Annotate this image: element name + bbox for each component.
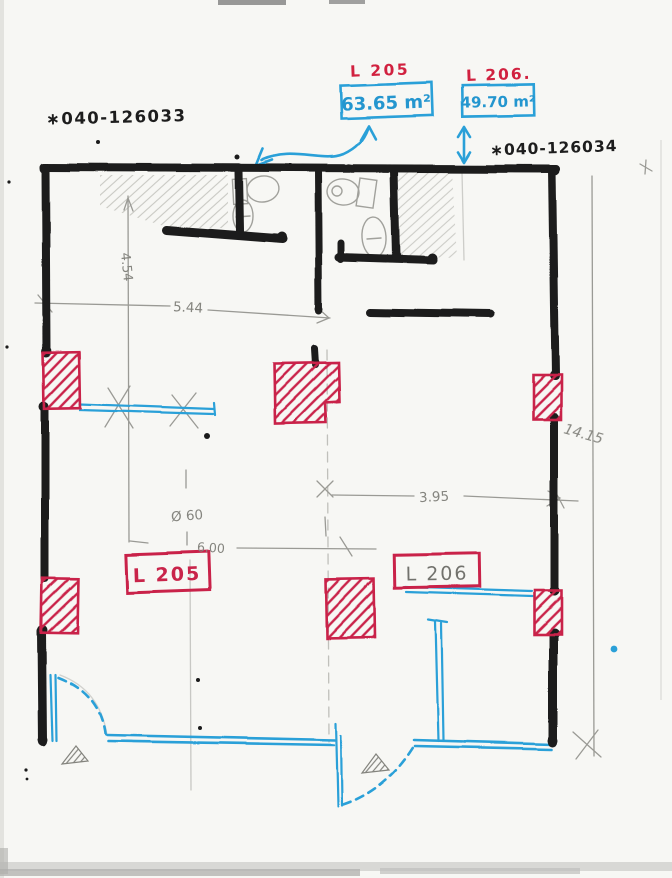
ink-dot — [204, 433, 210, 439]
hatch-region — [398, 172, 457, 258]
dim-line — [332, 495, 414, 496]
wall-segment — [552, 169, 555, 376]
scan-smudge-top — [329, 0, 365, 4]
area-value-l205: 63.65 m² — [341, 91, 432, 115]
triangle-marker — [362, 754, 389, 773]
wall-end-blobs — [38, 163, 560, 745]
scanned-sketch-page: ∗040-126033 ∗040-126034 L 205 63.65 m² L… — [0, 0, 672, 878]
dim-line — [464, 496, 578, 501]
wall-segment — [394, 170, 396, 257]
triangle-marker — [62, 746, 88, 764]
column-hatched — [534, 590, 561, 634]
toilet-bowl — [245, 174, 280, 204]
wall-segment — [42, 631, 43, 742]
wall-segment — [167, 230, 283, 239]
ink-dot — [24, 768, 27, 771]
dim-line — [592, 176, 594, 756]
dim-text-diameter: Ø 60 — [170, 507, 203, 525]
scan-band-bottom — [380, 868, 580, 874]
dim-line — [128, 196, 129, 542]
bathroom-fixtures — [232, 174, 387, 258]
dim-text-width: 6.00 — [197, 539, 226, 556]
scan-edge-left — [0, 0, 4, 878]
scan-smudge-top — [218, 0, 286, 5]
ink-dot — [5, 345, 8, 348]
dim-cross — [317, 481, 333, 497]
wall-segment — [339, 257, 434, 260]
walls-layer — [38, 163, 560, 745]
wall-segment — [239, 171, 240, 231]
column-hatched — [44, 352, 81, 409]
wall-segment — [370, 312, 491, 314]
dim-text-left-height: 4.54 — [117, 252, 135, 282]
blue-wall — [107, 735, 554, 749]
ink-dot — [196, 678, 200, 682]
parcel-number-right: ∗040-126034 — [490, 137, 618, 159]
ink-dot — [7, 180, 10, 183]
ink-dot — [26, 778, 29, 781]
dim-text-top-width: 5.44 — [173, 299, 204, 317]
dim-tick — [340, 537, 352, 556]
double-arrow-icon — [458, 127, 470, 162]
toilet-bowl — [326, 177, 361, 206]
unit-label-l205: L 205 — [350, 61, 411, 81]
column-hatched — [274, 363, 339, 423]
parcel-number-left: ∗040-126033 — [46, 106, 187, 129]
room-tag-l205: L 205 — [133, 563, 202, 587]
dim-tick — [325, 517, 326, 536]
sink — [361, 216, 388, 258]
hatch-region — [100, 175, 228, 228]
door-leaf — [51, 674, 342, 807]
wall-segment — [44, 167, 556, 169]
toilet-drain — [332, 186, 342, 196]
column-hatched — [325, 579, 374, 639]
center-guide-line — [327, 350, 329, 742]
floorplan-sketch-canvas: ∗040-126033 ∗040-126034 L 205 63.65 m² L… — [0, 0, 672, 878]
dim-line — [35, 303, 170, 306]
dim-text-total-height: 14.15 — [562, 421, 605, 447]
dim-line — [130, 541, 148, 543]
unit-label-l206: L 206. — [466, 65, 532, 85]
x-mark — [170, 393, 198, 428]
door-arc-ghost — [60, 675, 107, 735]
wall-segment — [46, 167, 47, 353]
dim-text-right-width: 3.95 — [419, 489, 450, 507]
dim-line — [208, 310, 330, 318]
dim-tick — [640, 160, 652, 174]
column-hatched — [42, 579, 79, 634]
sink-tap — [367, 238, 381, 239]
pencil-guide — [462, 172, 464, 260]
curved-arrow-icon — [255, 126, 376, 166]
blue-dot — [610, 646, 617, 653]
dimension-line-total-height — [573, 160, 652, 759]
ink-dot — [198, 726, 202, 730]
pencil-guide — [190, 560, 191, 790]
area-value-l206: 49.70 m² — [460, 92, 535, 111]
dim-cross — [573, 730, 601, 759]
labels-layer: ∗040-126033 ∗040-126034 L 205 63.65 m² L… — [46, 61, 618, 588]
room-tag-l206: L 206 — [405, 562, 468, 585]
scan-band-bottom — [0, 869, 360, 876]
column-hatched — [533, 375, 561, 419]
ink-dot — [96, 140, 100, 144]
wall-segment — [318, 170, 319, 311]
ink-dot — [235, 155, 240, 160]
scan-corner-mark — [0, 848, 8, 874]
dim-line — [237, 548, 376, 549]
